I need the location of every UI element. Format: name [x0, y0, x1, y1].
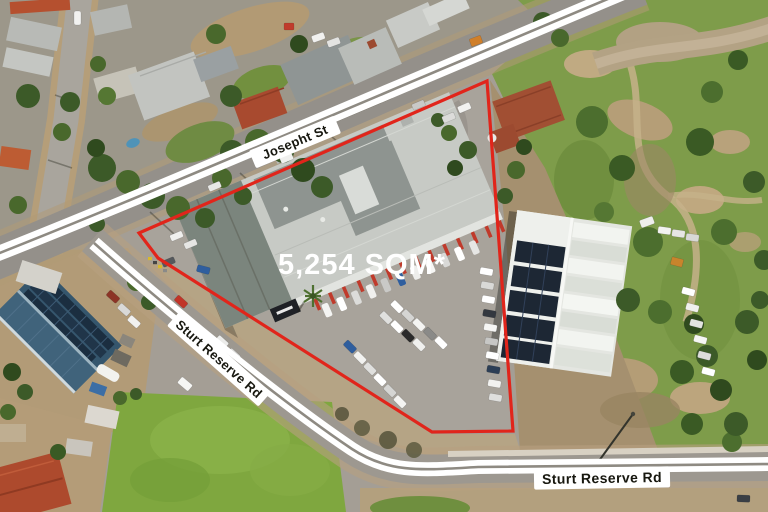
- aerial-property-photo: Josepht St Sturt Reserve Rd Sturt Reserv…: [0, 0, 768, 512]
- shed-roof: [0, 424, 26, 442]
- aerial-scene: Josepht St Sturt Reserve Rd Sturt Reserv…: [0, 0, 768, 512]
- area-label: 5,254 SQM*: [278, 249, 446, 281]
- east-solar-warehouse: [488, 209, 632, 379]
- street-name-sturt-horizontal: Sturt Reserve Rd: [542, 469, 662, 487]
- street-label-sturt-horizontal: Sturt Reserve Rd: [534, 466, 670, 489]
- red-truck: [284, 23, 294, 30]
